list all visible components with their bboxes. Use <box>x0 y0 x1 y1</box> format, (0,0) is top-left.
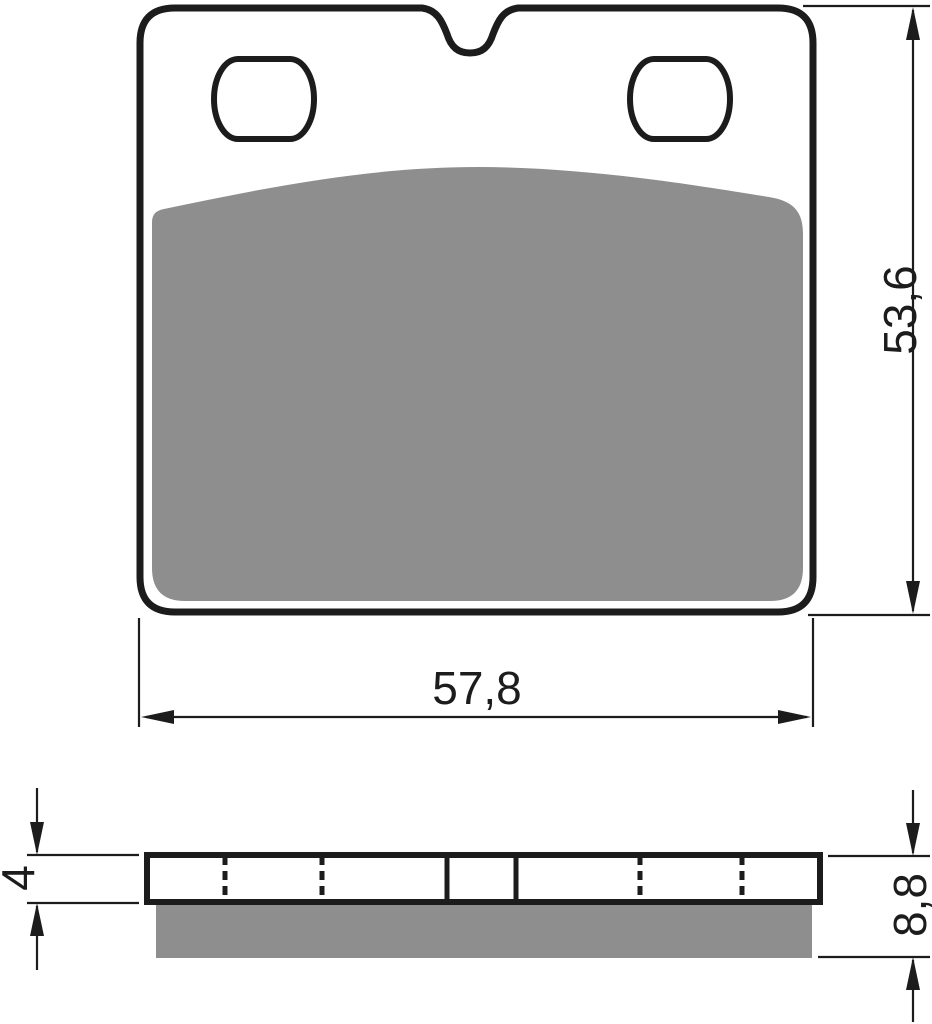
brake-pad-technical-drawing: 57,8 53,6 4 8,8 <box>0 0 932 1024</box>
drawing-canvas: 57,8 53,6 4 8,8 <box>0 0 932 1024</box>
dim-height-label: 53,6 <box>874 265 926 355</box>
dim-width-label: 57,8 <box>432 662 522 714</box>
friction-material-face <box>152 167 803 601</box>
mounting-hole-right <box>630 59 730 139</box>
side-friction-layer <box>156 905 812 958</box>
arrowhead-up <box>906 957 920 990</box>
dimension-backplate-thickness: 4 <box>0 788 139 970</box>
arrowhead-up <box>906 7 920 40</box>
side-backplate <box>147 855 820 902</box>
dim-backplate-thickness-label: 4 <box>0 865 44 891</box>
arrowhead-down <box>906 823 920 856</box>
arrowhead-up <box>30 903 44 936</box>
arrowhead-down <box>906 581 920 614</box>
arrowhead-down <box>30 822 44 855</box>
front-view <box>140 8 813 612</box>
dim-total-thickness-label: 8,8 <box>884 873 932 937</box>
dimension-height: 53,6 <box>803 6 930 615</box>
arrowhead-left <box>141 710 174 724</box>
mounting-hole-left <box>214 59 314 139</box>
side-view <box>147 855 820 958</box>
dimension-total-thickness: 8,8 <box>818 790 932 1022</box>
dimension-width: 57,8 <box>139 618 813 727</box>
arrowhead-right <box>778 710 811 724</box>
